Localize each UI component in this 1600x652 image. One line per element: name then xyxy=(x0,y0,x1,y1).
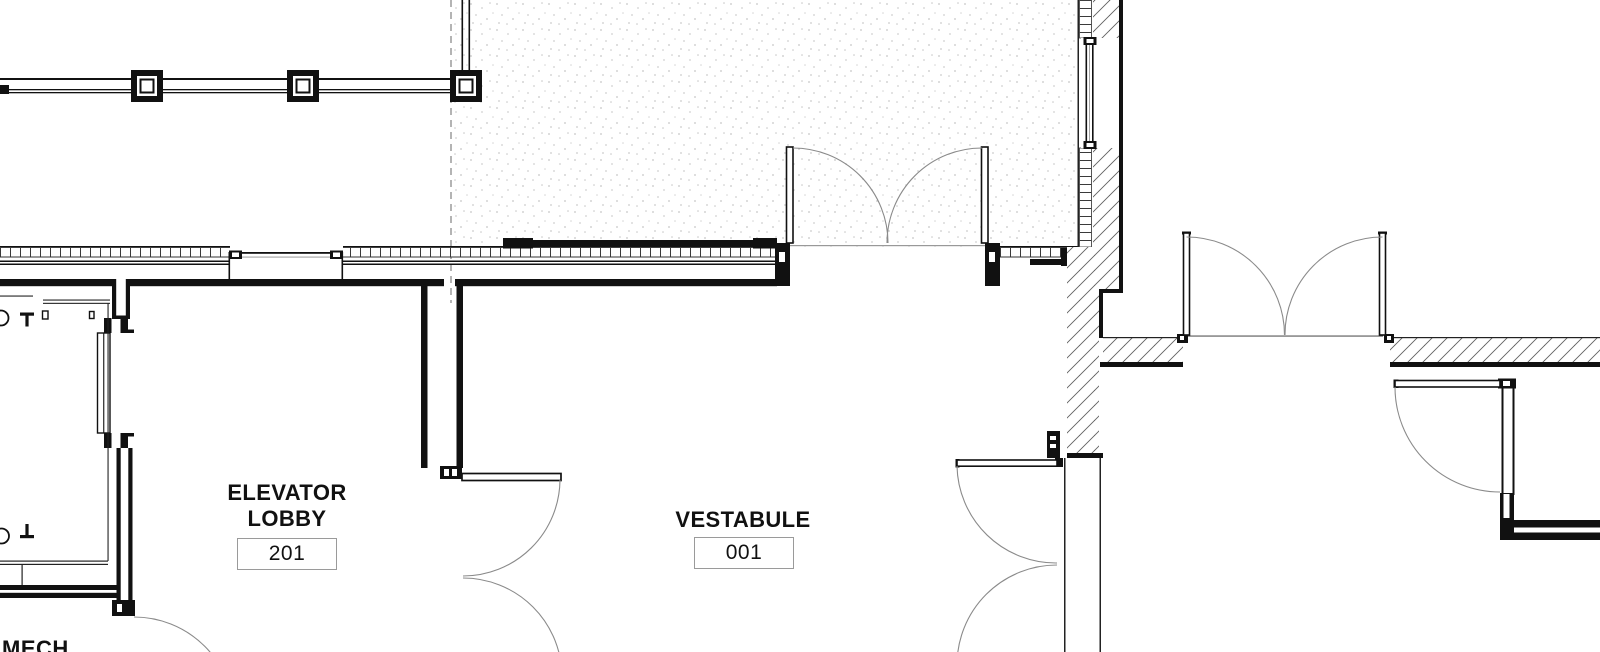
lobby-vestibule-wall xyxy=(421,286,463,479)
mech-room-wall xyxy=(0,585,135,616)
door-leaf xyxy=(957,460,1057,466)
door-leaf xyxy=(1184,233,1190,335)
door-jamb xyxy=(775,243,1000,286)
corridor-wall-band xyxy=(1100,334,1600,367)
door-leaf xyxy=(1380,233,1386,335)
room-label-line: ELEVATOR xyxy=(187,480,387,506)
door-swing-arc xyxy=(1187,237,1285,335)
southeast-room-door xyxy=(1394,379,1517,493)
room-number: 201 xyxy=(269,542,306,566)
southeast-room-wall xyxy=(1500,388,1600,540)
door-swing-arc xyxy=(1395,387,1500,492)
guide-rail-symbol xyxy=(0,311,94,327)
mech-door xyxy=(134,617,234,652)
canopy-edge-lines xyxy=(0,0,470,94)
corridor-double-door xyxy=(1182,232,1387,336)
door-leaf xyxy=(982,147,989,243)
interior-wall-north xyxy=(0,279,777,286)
vestibule-east-door-pair xyxy=(956,458,1064,652)
wall-window xyxy=(1081,37,1097,149)
lobby-vestibule-door-pair xyxy=(462,474,562,652)
column-grid xyxy=(131,70,482,102)
elevator-shaft xyxy=(0,279,134,600)
room-label-line: VESTABULE xyxy=(633,507,853,533)
room-number-tag-vestabule: 001 xyxy=(694,537,794,569)
guide-rail-symbol xyxy=(0,524,34,544)
curtain-wall-band xyxy=(0,246,1078,266)
door-swing-arc xyxy=(463,480,560,576)
door-swing-arc xyxy=(957,565,1057,652)
elevator-door xyxy=(98,318,135,448)
room-number: 001 xyxy=(726,541,763,565)
storefront-inset xyxy=(229,251,344,283)
door-swing-arc xyxy=(134,617,234,652)
door-leaf xyxy=(787,147,794,243)
room-label-elevator-lobby: ELEVATOR LOBBY xyxy=(187,480,387,532)
structural-column xyxy=(287,70,319,102)
door-swing-arc xyxy=(957,466,1057,563)
room-label-mech: MECH xyxy=(2,636,69,652)
structural-column xyxy=(131,70,163,102)
room-label-vestabule: VESTABULE xyxy=(633,507,853,533)
room-label-line: LOBBY xyxy=(187,506,387,532)
door-leaf xyxy=(462,474,561,481)
room-number-tag-elevator-lobby: 201 xyxy=(237,538,337,570)
floor-plan: ELEVATOR LOBBY 201 VESTABULE 001 MECH xyxy=(0,0,1600,652)
door-leaf xyxy=(1395,381,1500,388)
structural-column xyxy=(450,70,482,102)
door-swing-arc xyxy=(1285,237,1383,335)
door-swing-arc xyxy=(463,578,562,652)
